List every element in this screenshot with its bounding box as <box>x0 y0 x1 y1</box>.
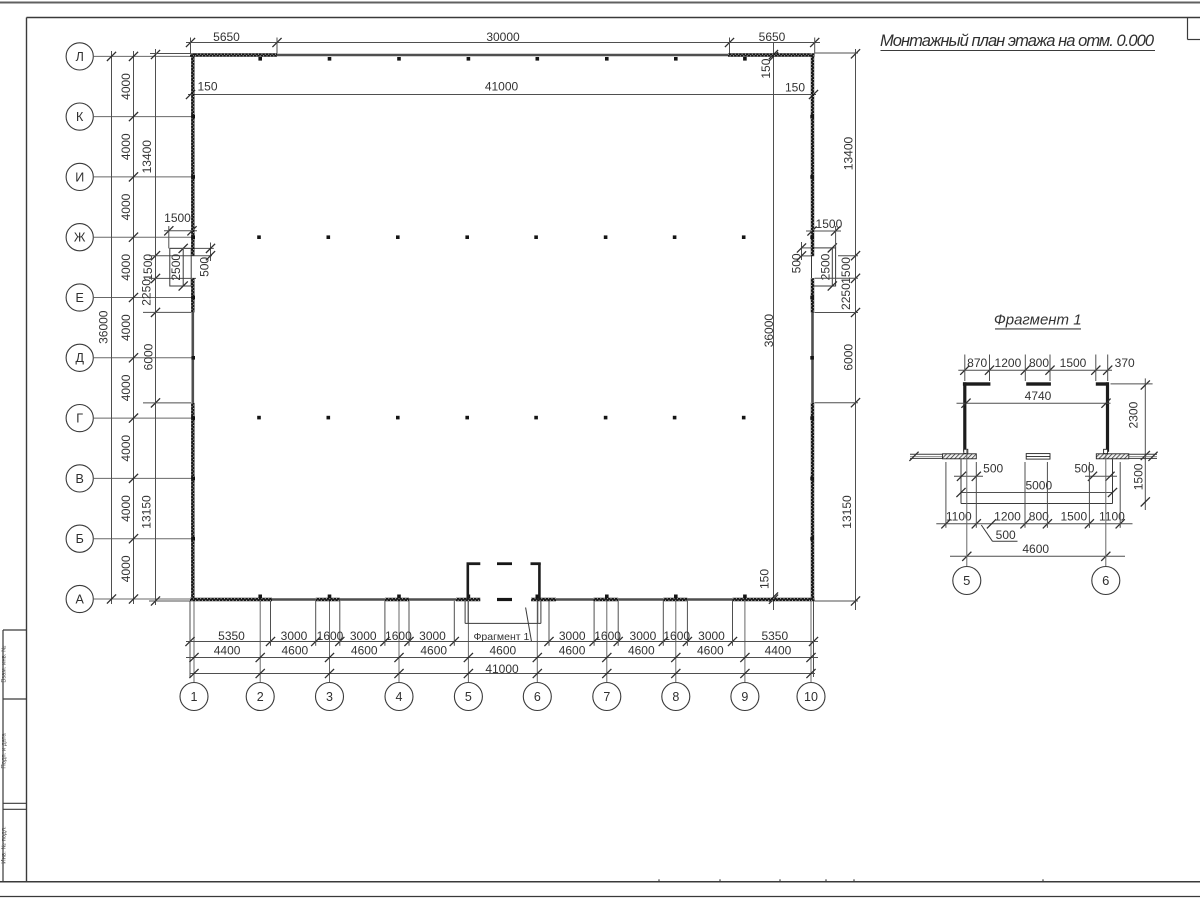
svg-text:3000: 3000 <box>559 629 586 643</box>
svg-text:5350: 5350 <box>761 629 788 643</box>
svg-text:5000: 5000 <box>1025 478 1052 492</box>
svg-text:1500: 1500 <box>1132 463 1146 490</box>
svg-text:500: 500 <box>983 462 1003 476</box>
svg-text:3000: 3000 <box>350 629 377 643</box>
svg-text:1600: 1600 <box>317 629 344 643</box>
svg-text:36000: 36000 <box>97 310 111 344</box>
svg-text:4000: 4000 <box>119 435 133 462</box>
svg-text:36000: 36000 <box>762 314 776 348</box>
svg-text:1600: 1600 <box>385 629 412 643</box>
svg-text:500: 500 <box>790 253 804 273</box>
svg-text:4600: 4600 <box>489 644 516 658</box>
svg-text:3000: 3000 <box>281 629 308 643</box>
svg-text:5: 5 <box>465 690 472 704</box>
svg-text:4000: 4000 <box>119 374 133 401</box>
svg-text:500: 500 <box>197 257 211 277</box>
svg-text:2300: 2300 <box>1127 401 1141 428</box>
svg-text:4600: 4600 <box>1022 542 1049 556</box>
svg-text:4000: 4000 <box>119 193 133 220</box>
svg-text:1500: 1500 <box>839 257 853 284</box>
svg-text:Монтажный план этажа на отм. 0: Монтажный план этажа на отм. 0.000 <box>880 32 1155 50</box>
svg-text:1600: 1600 <box>663 629 690 643</box>
svg-text:1: 1 <box>191 690 198 704</box>
svg-text:Б: Б <box>76 532 84 546</box>
svg-text:1200: 1200 <box>994 509 1021 523</box>
svg-text:1200: 1200 <box>995 356 1022 370</box>
svg-text:В: В <box>76 472 84 486</box>
svg-text:800: 800 <box>1029 509 1049 523</box>
svg-text:2500: 2500 <box>169 254 183 281</box>
svg-text:13400: 13400 <box>841 136 855 170</box>
svg-text:4000: 4000 <box>119 254 133 281</box>
svg-text:2: 2 <box>257 690 264 704</box>
svg-text:150: 150 <box>785 81 805 95</box>
svg-text:2250: 2250 <box>140 279 154 306</box>
svg-text:4600: 4600 <box>697 644 724 658</box>
svg-text:4400: 4400 <box>214 644 241 658</box>
svg-text:4000: 4000 <box>119 555 133 582</box>
svg-text:800: 800 <box>1029 356 1049 370</box>
svg-text:13150: 13150 <box>840 495 854 529</box>
svg-text:4600: 4600 <box>628 644 655 658</box>
svg-text:5650: 5650 <box>759 30 786 44</box>
svg-text:4000: 4000 <box>119 314 133 341</box>
svg-text:Ж: Ж <box>74 231 86 245</box>
svg-text:500: 500 <box>996 528 1016 542</box>
svg-text:150: 150 <box>758 569 772 589</box>
svg-text:4: 4 <box>396 690 403 704</box>
svg-text:3000: 3000 <box>698 629 725 643</box>
svg-text:41000: 41000 <box>485 662 519 676</box>
svg-text:150: 150 <box>759 58 773 78</box>
svg-text:8: 8 <box>672 690 679 704</box>
svg-text:6000: 6000 <box>141 343 155 370</box>
svg-text:1500: 1500 <box>164 211 191 225</box>
svg-text:6000: 6000 <box>841 344 855 371</box>
svg-text:4000: 4000 <box>119 73 133 100</box>
svg-text:Инв. № подл.: Инв. № подл. <box>1 826 8 864</box>
svg-text:Д: Д <box>75 351 84 365</box>
svg-text:13400: 13400 <box>140 140 154 174</box>
svg-text:А: А <box>76 592 85 606</box>
svg-text:6: 6 <box>534 690 541 704</box>
svg-text:150: 150 <box>197 80 217 94</box>
svg-text:1600: 1600 <box>594 629 621 643</box>
svg-text:4000: 4000 <box>119 495 133 522</box>
svg-text:370: 370 <box>1115 356 1135 370</box>
svg-text:Взам. инв. №: Взам. инв. № <box>1 645 8 682</box>
svg-text:3000: 3000 <box>419 629 446 643</box>
svg-text:4740: 4740 <box>1025 389 1052 403</box>
svg-text:1500: 1500 <box>1060 509 1087 523</box>
svg-text:3: 3 <box>326 690 333 704</box>
svg-text:Фрагмент 1: Фрагмент 1 <box>473 631 529 643</box>
svg-text:2250: 2250 <box>839 283 853 310</box>
svg-text:5: 5 <box>963 573 970 588</box>
svg-text:1500: 1500 <box>141 254 155 281</box>
svg-text:500: 500 <box>1074 462 1094 476</box>
svg-text:4600: 4600 <box>559 644 586 658</box>
svg-text:Л: Л <box>76 50 84 64</box>
svg-text:4600: 4600 <box>281 644 308 658</box>
svg-text:Фрагмент 1: Фрагмент 1 <box>994 312 1082 329</box>
svg-text:4600: 4600 <box>420 644 447 658</box>
svg-text:4600: 4600 <box>351 644 378 658</box>
svg-text:1500: 1500 <box>816 217 843 231</box>
svg-text:4400: 4400 <box>765 644 792 658</box>
svg-text:10: 10 <box>804 690 818 704</box>
svg-text:7: 7 <box>603 690 610 704</box>
svg-text:41000: 41000 <box>485 80 519 94</box>
svg-text:5650: 5650 <box>213 30 240 44</box>
svg-text:К: К <box>76 110 84 124</box>
svg-text:И: И <box>75 170 84 184</box>
svg-text:Е: Е <box>76 291 84 305</box>
svg-text:1100: 1100 <box>946 509 972 523</box>
svg-text:3000: 3000 <box>630 629 657 643</box>
svg-text:870: 870 <box>967 356 987 370</box>
svg-text:2500: 2500 <box>819 253 833 280</box>
svg-text:1500: 1500 <box>1060 356 1087 370</box>
svg-text:Г: Г <box>76 411 83 425</box>
svg-text:4000: 4000 <box>119 133 133 160</box>
svg-text:30000: 30000 <box>486 30 520 44</box>
svg-text:6: 6 <box>1102 573 1109 588</box>
svg-text:Подп. и дата: Подп. и дата <box>2 733 8 769</box>
svg-text:5350: 5350 <box>218 629 245 643</box>
svg-text:9: 9 <box>741 690 748 704</box>
svg-text:1100: 1100 <box>1099 509 1125 523</box>
svg-text:13150: 13150 <box>139 495 153 529</box>
